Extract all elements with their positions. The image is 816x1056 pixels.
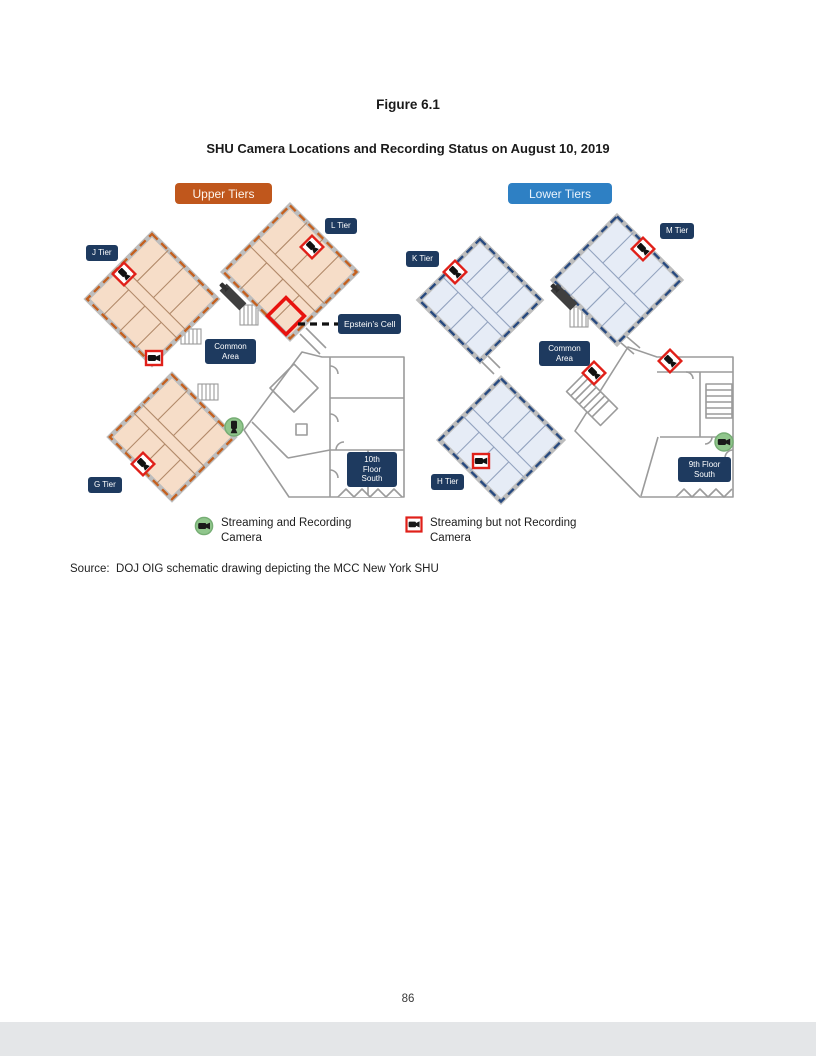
legend-item-streaming-recording: Streaming and Recording Camera [194, 516, 351, 546]
green-recording-camera-icon [194, 516, 214, 536]
page-gap-bar [0, 1022, 816, 1056]
epstein-cell-label: Epstein’s Cell [338, 314, 401, 334]
recording-camera-lower-icon [715, 433, 733, 451]
stairs-icon [706, 384, 732, 418]
legend-text: Streaming and Recording Camera [221, 516, 351, 546]
tier-label-h: H Tier [431, 474, 464, 490]
document-page: Figure 6.1 SHU Camera Locations and Reco… [0, 0, 816, 1056]
common-area-label-lower: Common Area [539, 341, 590, 366]
tier-label-l: L Tier [325, 218, 357, 234]
red-not-recording-camera-icon [405, 516, 423, 533]
upper-tiers-header: Upper Tiers [175, 183, 272, 204]
lower-tiers-header: Lower Tiers [508, 183, 612, 204]
tier-label-g: G Tier [88, 477, 122, 493]
camera-j-tier-lower-icon [146, 351, 162, 365]
tier-label-j: J Tier [86, 245, 118, 261]
legend: Streaming and Recording Camera Streaming… [0, 510, 816, 560]
legend-text: Streaming but not Recording Camera [430, 516, 576, 546]
page-number: 86 [0, 993, 816, 1005]
common-area-label-upper: Common Area [205, 339, 256, 364]
recording-camera-upper-icon [225, 418, 243, 436]
floor-label-10th-south: 10th Floor South [347, 452, 397, 487]
tier-label-m: M Tier [660, 223, 694, 239]
legend-item-streaming-not-recording: Streaming but not Recording Camera [405, 516, 576, 546]
camera-h-tier-icon [473, 454, 489, 468]
tier-label-k: K Tier [406, 251, 439, 267]
source-note: Source: DOJ OIG schematic drawing depict… [70, 563, 439, 575]
floor-label-9th-south: 9th Floor South [678, 457, 731, 482]
